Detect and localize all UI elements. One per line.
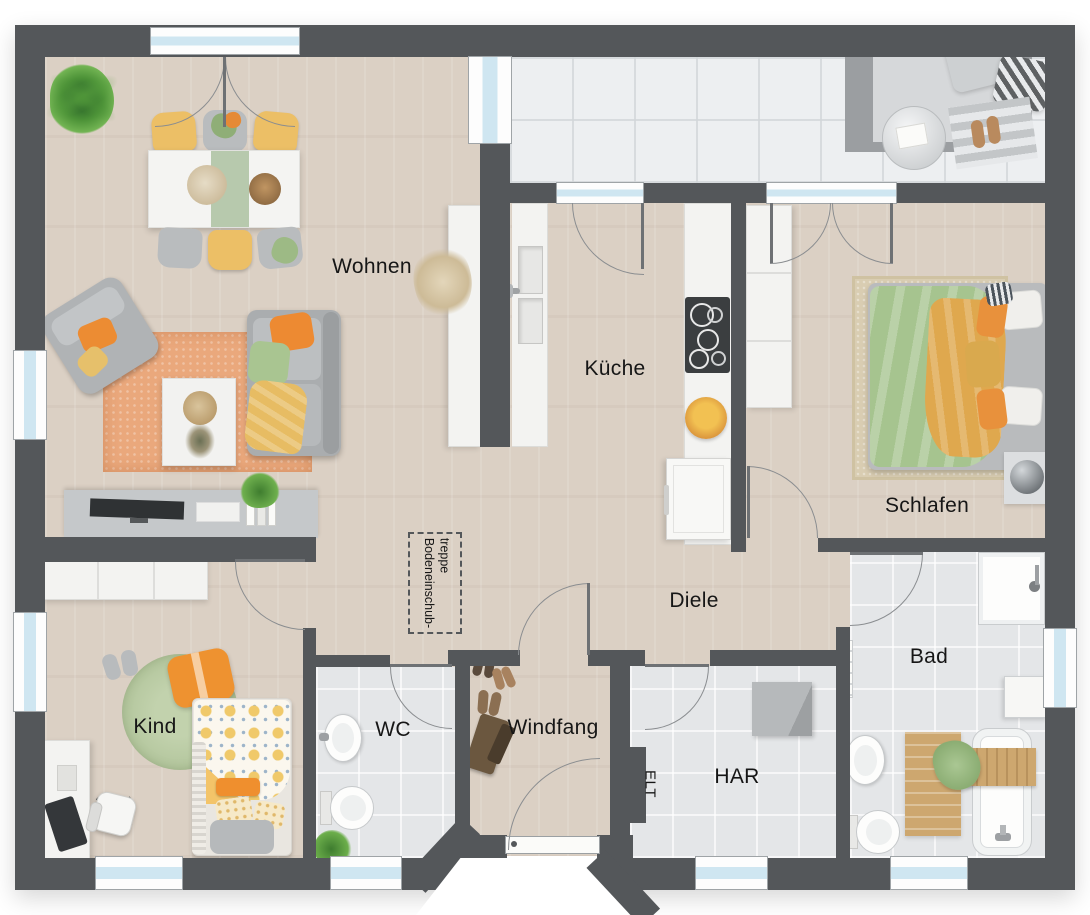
fridge [666, 458, 731, 540]
room-label-wc: WC [375, 718, 411, 742]
dried-plant [185, 423, 215, 459]
wall-wc-top [316, 655, 390, 667]
pillow-green [247, 340, 291, 386]
sofa [247, 310, 341, 456]
wall-har-bad [836, 627, 850, 858]
tech-unit [752, 682, 812, 736]
wall-kueche-schlafen [731, 203, 746, 552]
windfang-door-leaf [587, 583, 590, 655]
har-door-leaf [645, 664, 709, 667]
pillow-orange [976, 387, 1009, 430]
table-bowl [249, 173, 281, 205]
window-bad-right [1043, 628, 1077, 708]
label-attic-line1: Bodeneinschub- [420, 538, 436, 628]
kind-door-leaf [235, 559, 305, 562]
pillow-striped [984, 281, 1013, 307]
pillow-yellow [964, 340, 1001, 388]
room-label-schlafen: Schlafen [885, 494, 969, 518]
sink-basin [518, 246, 543, 294]
wc-faucet [319, 733, 329, 741]
window-schlafen-terrace-door [766, 182, 897, 204]
room-label-har: HAR [714, 765, 759, 789]
floor-plan: Wohnen Küche Schlafen Diele Kind WC Wind… [0, 0, 1090, 915]
window-wohnen-left [13, 350, 47, 440]
dining-chair [256, 226, 304, 270]
bad-toilet [846, 810, 900, 854]
coffee-table [162, 378, 236, 466]
dining-chair [157, 227, 203, 269]
pillow-gray [210, 820, 274, 854]
wall-right [1045, 25, 1075, 890]
wall-windfang-right [610, 650, 630, 858]
wall-left [15, 25, 45, 890]
wall-diele-band-b [588, 650, 645, 666]
kids-bed [192, 698, 292, 856]
room-label-windfang: Windfang [507, 716, 598, 740]
knit-runner [192, 742, 206, 854]
wc-toilet [320, 786, 376, 830]
window-french-door [150, 27, 300, 55]
window-kind-bottom [95, 856, 183, 890]
window-kueche-terrace-door [556, 182, 644, 204]
speaker-ball [1010, 460, 1044, 494]
washer [1004, 676, 1048, 718]
tv [90, 498, 185, 519]
sink-basin [518, 298, 543, 344]
wall-diele-band-c [710, 650, 836, 666]
table-flowers [187, 165, 227, 205]
window-wc-bottom [330, 856, 402, 890]
shoes [472, 654, 516, 774]
monitor [44, 796, 88, 853]
kitchen-sink-counter [512, 203, 548, 447]
throw-yellow [243, 379, 309, 456]
window-wohnen-east [468, 56, 512, 144]
double-bed [868, 283, 1048, 470]
window-kind-left [13, 612, 47, 712]
room-label-bad: Bad [910, 645, 948, 669]
schlafen-terrace-leaf-left [770, 203, 773, 263]
schlafen-door-leaf [747, 466, 750, 538]
wc-door-leaf [390, 664, 452, 667]
dining-chair [208, 230, 252, 270]
cooktop [685, 297, 730, 373]
wall-schlafen-bottom [818, 538, 1075, 552]
label-attic-line2: treppe [436, 538, 452, 628]
dining-table [148, 150, 300, 228]
bad-sink [845, 735, 885, 785]
desk-chair [88, 786, 140, 846]
window-bad-bottom [890, 856, 968, 890]
schlafen-terrace-leaf-right [890, 203, 893, 263]
tv-sideboard [64, 490, 318, 538]
label-attic-stairs: Bodeneinschub- treppe [420, 538, 451, 628]
terrace-corner-post [1053, 28, 1072, 46]
label-elt: ELT [642, 770, 659, 798]
wc-sink [324, 714, 362, 762]
palm-plant [46, 58, 118, 144]
window-har-bottom [695, 856, 768, 890]
shelf-plant [240, 472, 280, 508]
bad-door-leaf [850, 552, 923, 555]
bolster-orange [216, 778, 260, 796]
room-label-kueche: Küche [584, 357, 645, 381]
hall-cabinet [448, 205, 482, 447]
shower [978, 552, 1045, 625]
desk [42, 740, 90, 865]
room-label-wohnen: Wohnen [332, 255, 412, 279]
room-label-diele: Diele [669, 589, 718, 613]
french-door-leaf [223, 57, 226, 127]
terrace-side-table [882, 106, 946, 170]
wall-kind-wc [303, 628, 316, 858]
room-label-kind: Kind [133, 715, 176, 739]
kueche-terrace-door-leaf [641, 203, 644, 269]
terrace-runner [948, 97, 1038, 170]
sandals [970, 119, 986, 148]
fruit-bowl [685, 397, 727, 439]
wall-diele-band-a [448, 650, 520, 666]
